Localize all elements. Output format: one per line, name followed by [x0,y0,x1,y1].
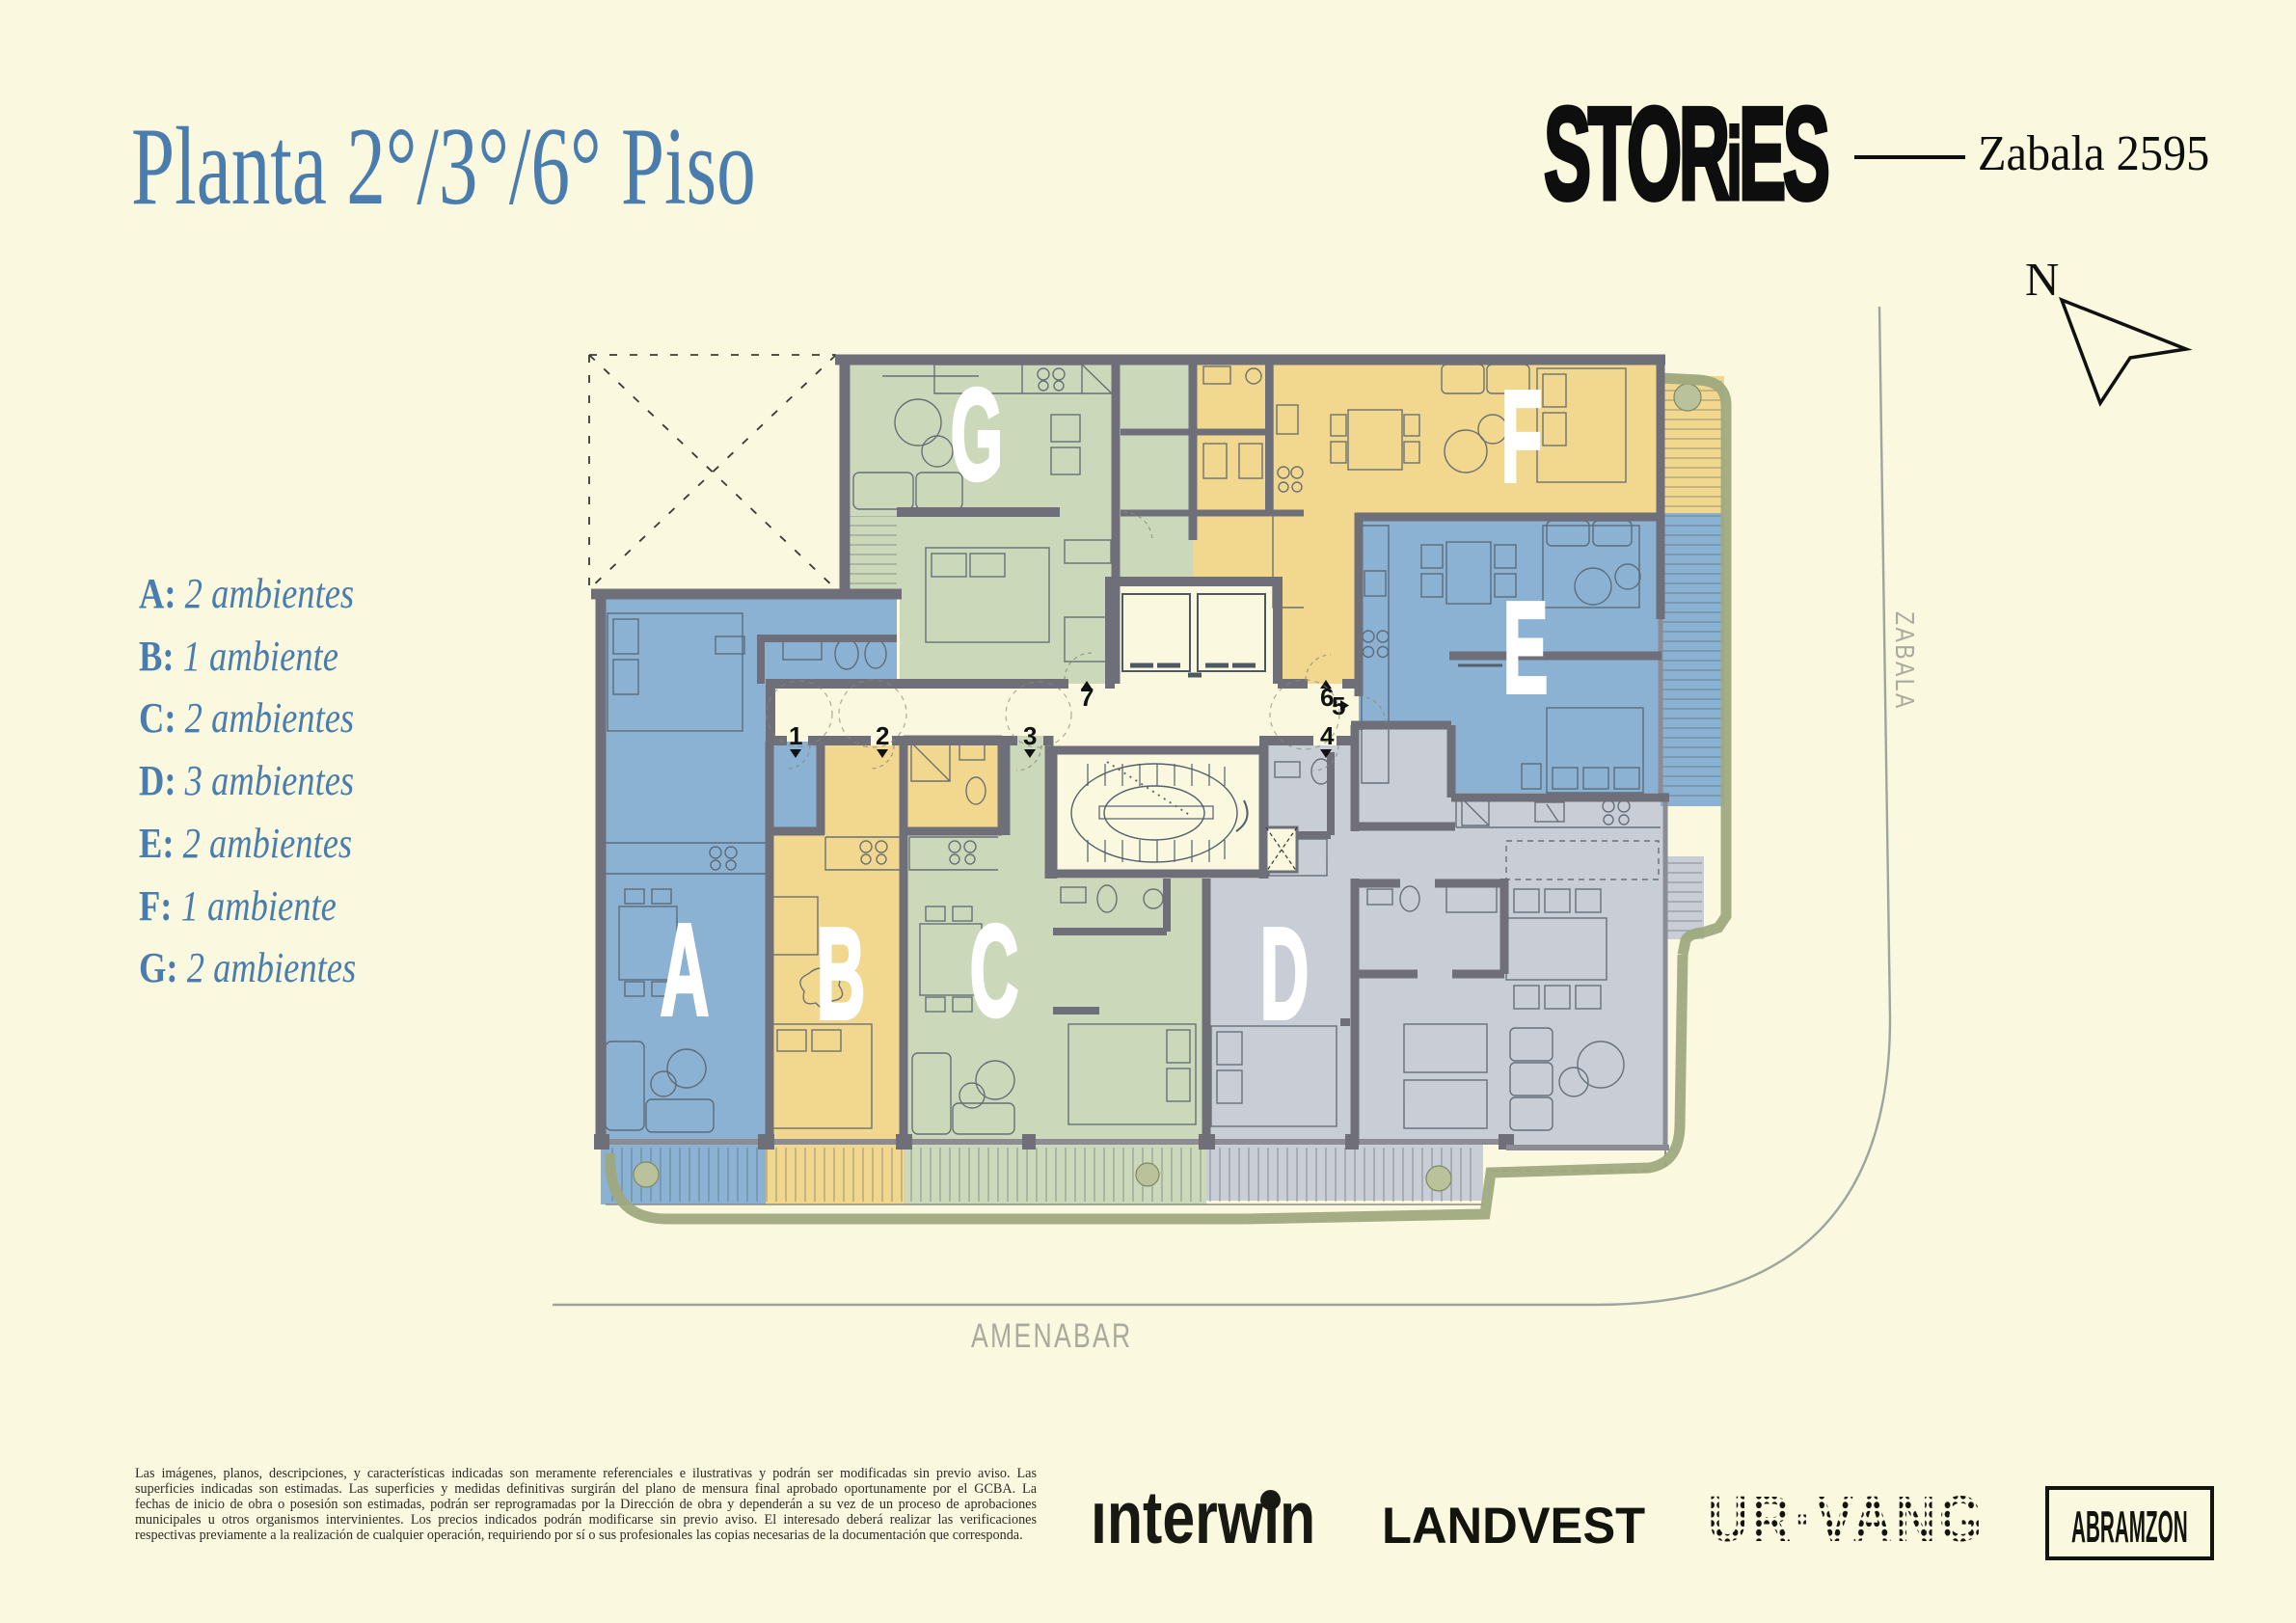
svg-text:A: A [661,897,710,1042]
svg-text:G: G [951,362,1004,507]
svg-text:C: C [970,898,1019,1043]
svg-text:F: F [1501,364,1543,509]
svg-text:E: E [1503,575,1549,720]
svg-text:B: B [817,901,866,1046]
svg-text:D: D [1260,901,1310,1046]
